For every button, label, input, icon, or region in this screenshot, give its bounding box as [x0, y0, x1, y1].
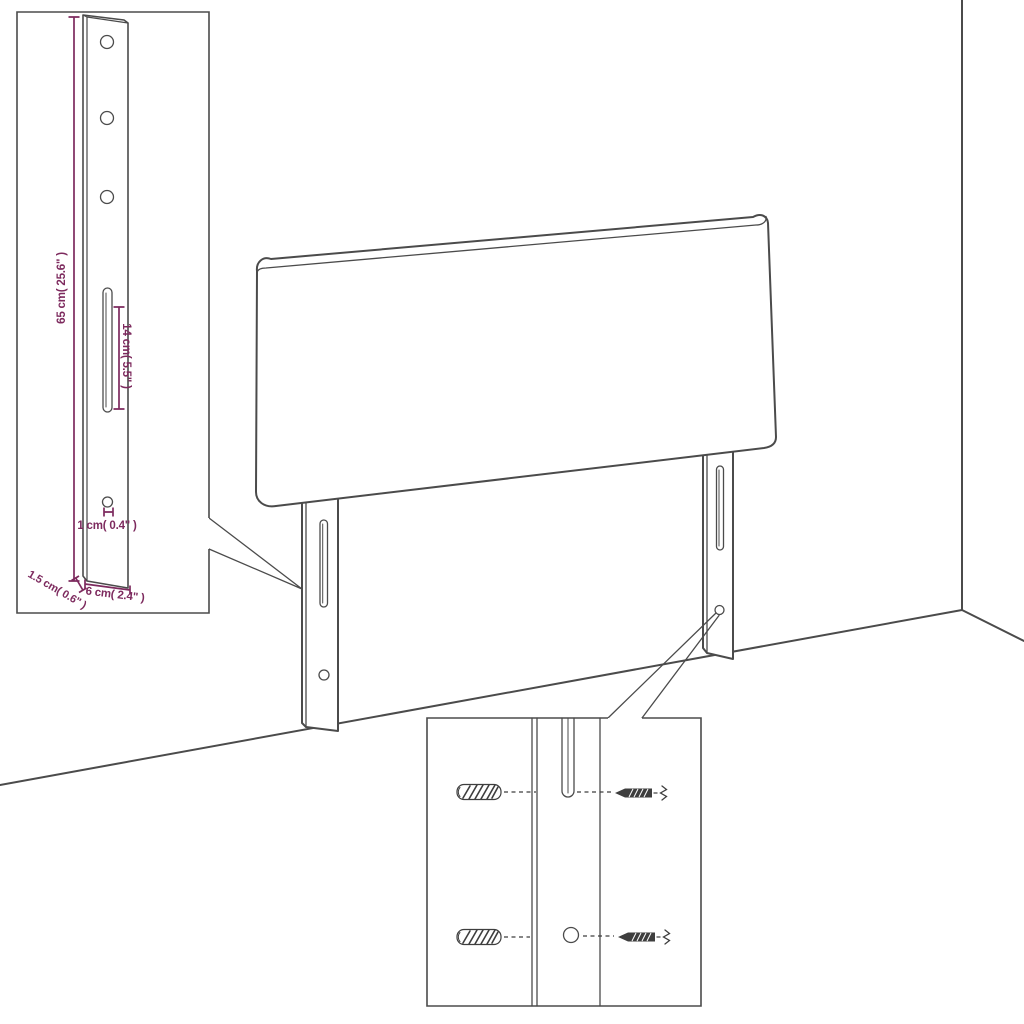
- wall-plug-icon: [457, 930, 501, 945]
- headboard-leg-right: [703, 440, 733, 659]
- dimension-label-slot: 14 cm( 5.5" ): [120, 323, 132, 389]
- mounting-inset-box: [427, 718, 701, 1006]
- dimension-label-hole: 1 cm( 0.4" ): [77, 520, 136, 532]
- bracket-drawing: [83, 15, 128, 588]
- callout-wedge-left: [209, 518, 302, 589]
- headboard-leg-left: [302, 486, 338, 731]
- headboard-panel: [256, 215, 776, 506]
- dimension-label-height: 65 cm( 25.6" ): [56, 252, 68, 324]
- diagram-canvas: 65 cm( 25.6" ) 14 cm( 5.5" ) 1 cm( 0.4" …: [0, 0, 1024, 1024]
- line-art: [0, 0, 1024, 1024]
- wall-plug-icon: [457, 785, 501, 800]
